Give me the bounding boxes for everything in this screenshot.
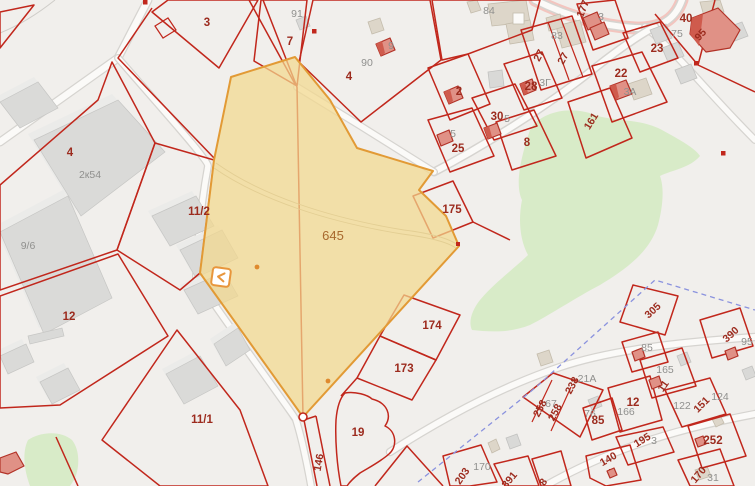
- building: [0, 339, 34, 374]
- parcel-label-5: 5: [450, 128, 456, 140]
- parcel-label-305: 305: [642, 300, 663, 321]
- parcel-label-19: 19: [352, 427, 365, 439]
- parcel-label-173: 173: [394, 363, 413, 375]
- forest-patch-large: [470, 110, 700, 331]
- parcel-label-2к54: 2к54: [79, 169, 101, 181]
- parcel-label-174: 174: [422, 320, 442, 332]
- map-svg: 3917990484832727177340957523223А2283Г305…: [0, 0, 755, 486]
- building: [36, 363, 80, 404]
- parcel-label-151: 151: [691, 394, 712, 415]
- parcel-label-645: 645: [322, 228, 344, 243]
- parcel-label-252: 252: [703, 435, 722, 447]
- cadastral-map-canvas[interactable]: 3917990484832727177340957523223А2283Г305…: [0, 0, 755, 486]
- parcel-label-83: 83: [551, 30, 563, 42]
- parcel-label-11/2: 11/2: [188, 206, 210, 218]
- parcel-label-3Г: 3Г: [539, 77, 551, 89]
- building: [0, 77, 58, 128]
- parcel-label-3А: 3А: [624, 86, 637, 98]
- parcel-label-122: 122: [673, 400, 691, 412]
- parcel-label-4: 4: [346, 71, 353, 83]
- parcel-label-95: 95: [741, 336, 753, 348]
- parcel-label-170: 170: [473, 461, 491, 473]
- parcel-label-4: 4: [67, 147, 74, 159]
- forest-patch-small: [24, 433, 78, 486]
- collapse-chevron-icon[interactable]: [211, 267, 231, 287]
- parcel-label-22: 22: [615, 68, 628, 80]
- parcel-label-175: 175: [442, 204, 462, 216]
- parcel-label-166: 166: [617, 406, 635, 418]
- parcel-label-27: 27: [555, 50, 571, 66]
- parcel-label-25: 25: [452, 143, 465, 155]
- parcel-label-9: 9: [388, 40, 394, 52]
- parcel-label-40: 40: [680, 13, 693, 25]
- parcel-label-7: 7: [287, 36, 293, 48]
- parcel-label-28: 28: [525, 81, 538, 93]
- parcel-label-146: 146: [312, 453, 327, 472]
- parcel-label-27: 27: [531, 47, 547, 63]
- parcel-label-3: 3: [598, 11, 604, 23]
- parcel-label-91: 91: [291, 8, 303, 20]
- parcel-label-12: 12: [63, 311, 76, 323]
- parcel-label-31: 31: [707, 472, 719, 484]
- parcel-label-124: 124: [711, 391, 729, 403]
- parcel-label-11/1: 11/1: [191, 414, 213, 426]
- parcel-label-5: 5: [504, 113, 510, 125]
- building: [162, 351, 218, 404]
- parcel-label-84: 84: [483, 5, 495, 17]
- parcel-label-3: 3: [651, 435, 657, 447]
- parcel-label-165: 165: [656, 364, 674, 376]
- parcel-label-30: 30: [491, 111, 504, 123]
- parcel-label-391: 391: [499, 469, 520, 486]
- parcel-label-90: 90: [361, 57, 373, 69]
- parcel-label-2: 2: [456, 86, 462, 98]
- parcel-label-9/6: 9/6: [21, 240, 36, 252]
- parcel-label-23: 23: [651, 43, 664, 55]
- parcel-label-8: 8: [524, 137, 531, 149]
- parcel-label-21А: 21А: [578, 373, 597, 385]
- parcel-label-85: 85: [592, 415, 605, 427]
- parcel-label-3: 3: [204, 17, 210, 29]
- parcel-label-75: 75: [671, 28, 683, 40]
- parcel-label-203: 203: [453, 466, 473, 486]
- parcel-label-85: 85: [641, 342, 653, 354]
